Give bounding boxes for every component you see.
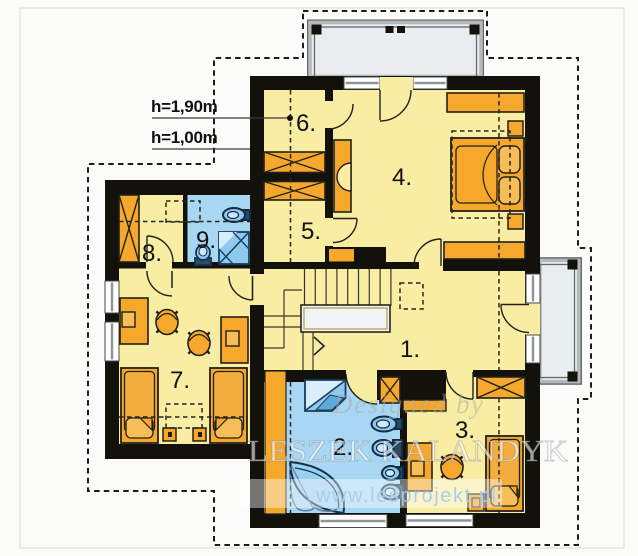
svg-text:9.: 9. bbox=[196, 227, 216, 254]
svg-text:www.lesprojekt.pl: www.lesprojekt.pl bbox=[315, 485, 496, 507]
svg-text:7.: 7. bbox=[170, 367, 190, 394]
svg-text:4.: 4. bbox=[392, 164, 412, 191]
svg-text:6.: 6. bbox=[296, 110, 316, 137]
svg-text:5.: 5. bbox=[301, 218, 321, 245]
svg-text:h=1,00m: h=1,00m bbox=[151, 128, 218, 147]
svg-text:1.: 1. bbox=[400, 336, 420, 363]
svg-text:8.: 8. bbox=[142, 240, 162, 267]
svg-text:Designed by: Designed by bbox=[332, 389, 483, 419]
svg-text:LESZEK KALANDYK: LESZEK KALANDYK bbox=[248, 433, 569, 468]
svg-text:h=1,90m: h=1,90m bbox=[151, 97, 218, 116]
